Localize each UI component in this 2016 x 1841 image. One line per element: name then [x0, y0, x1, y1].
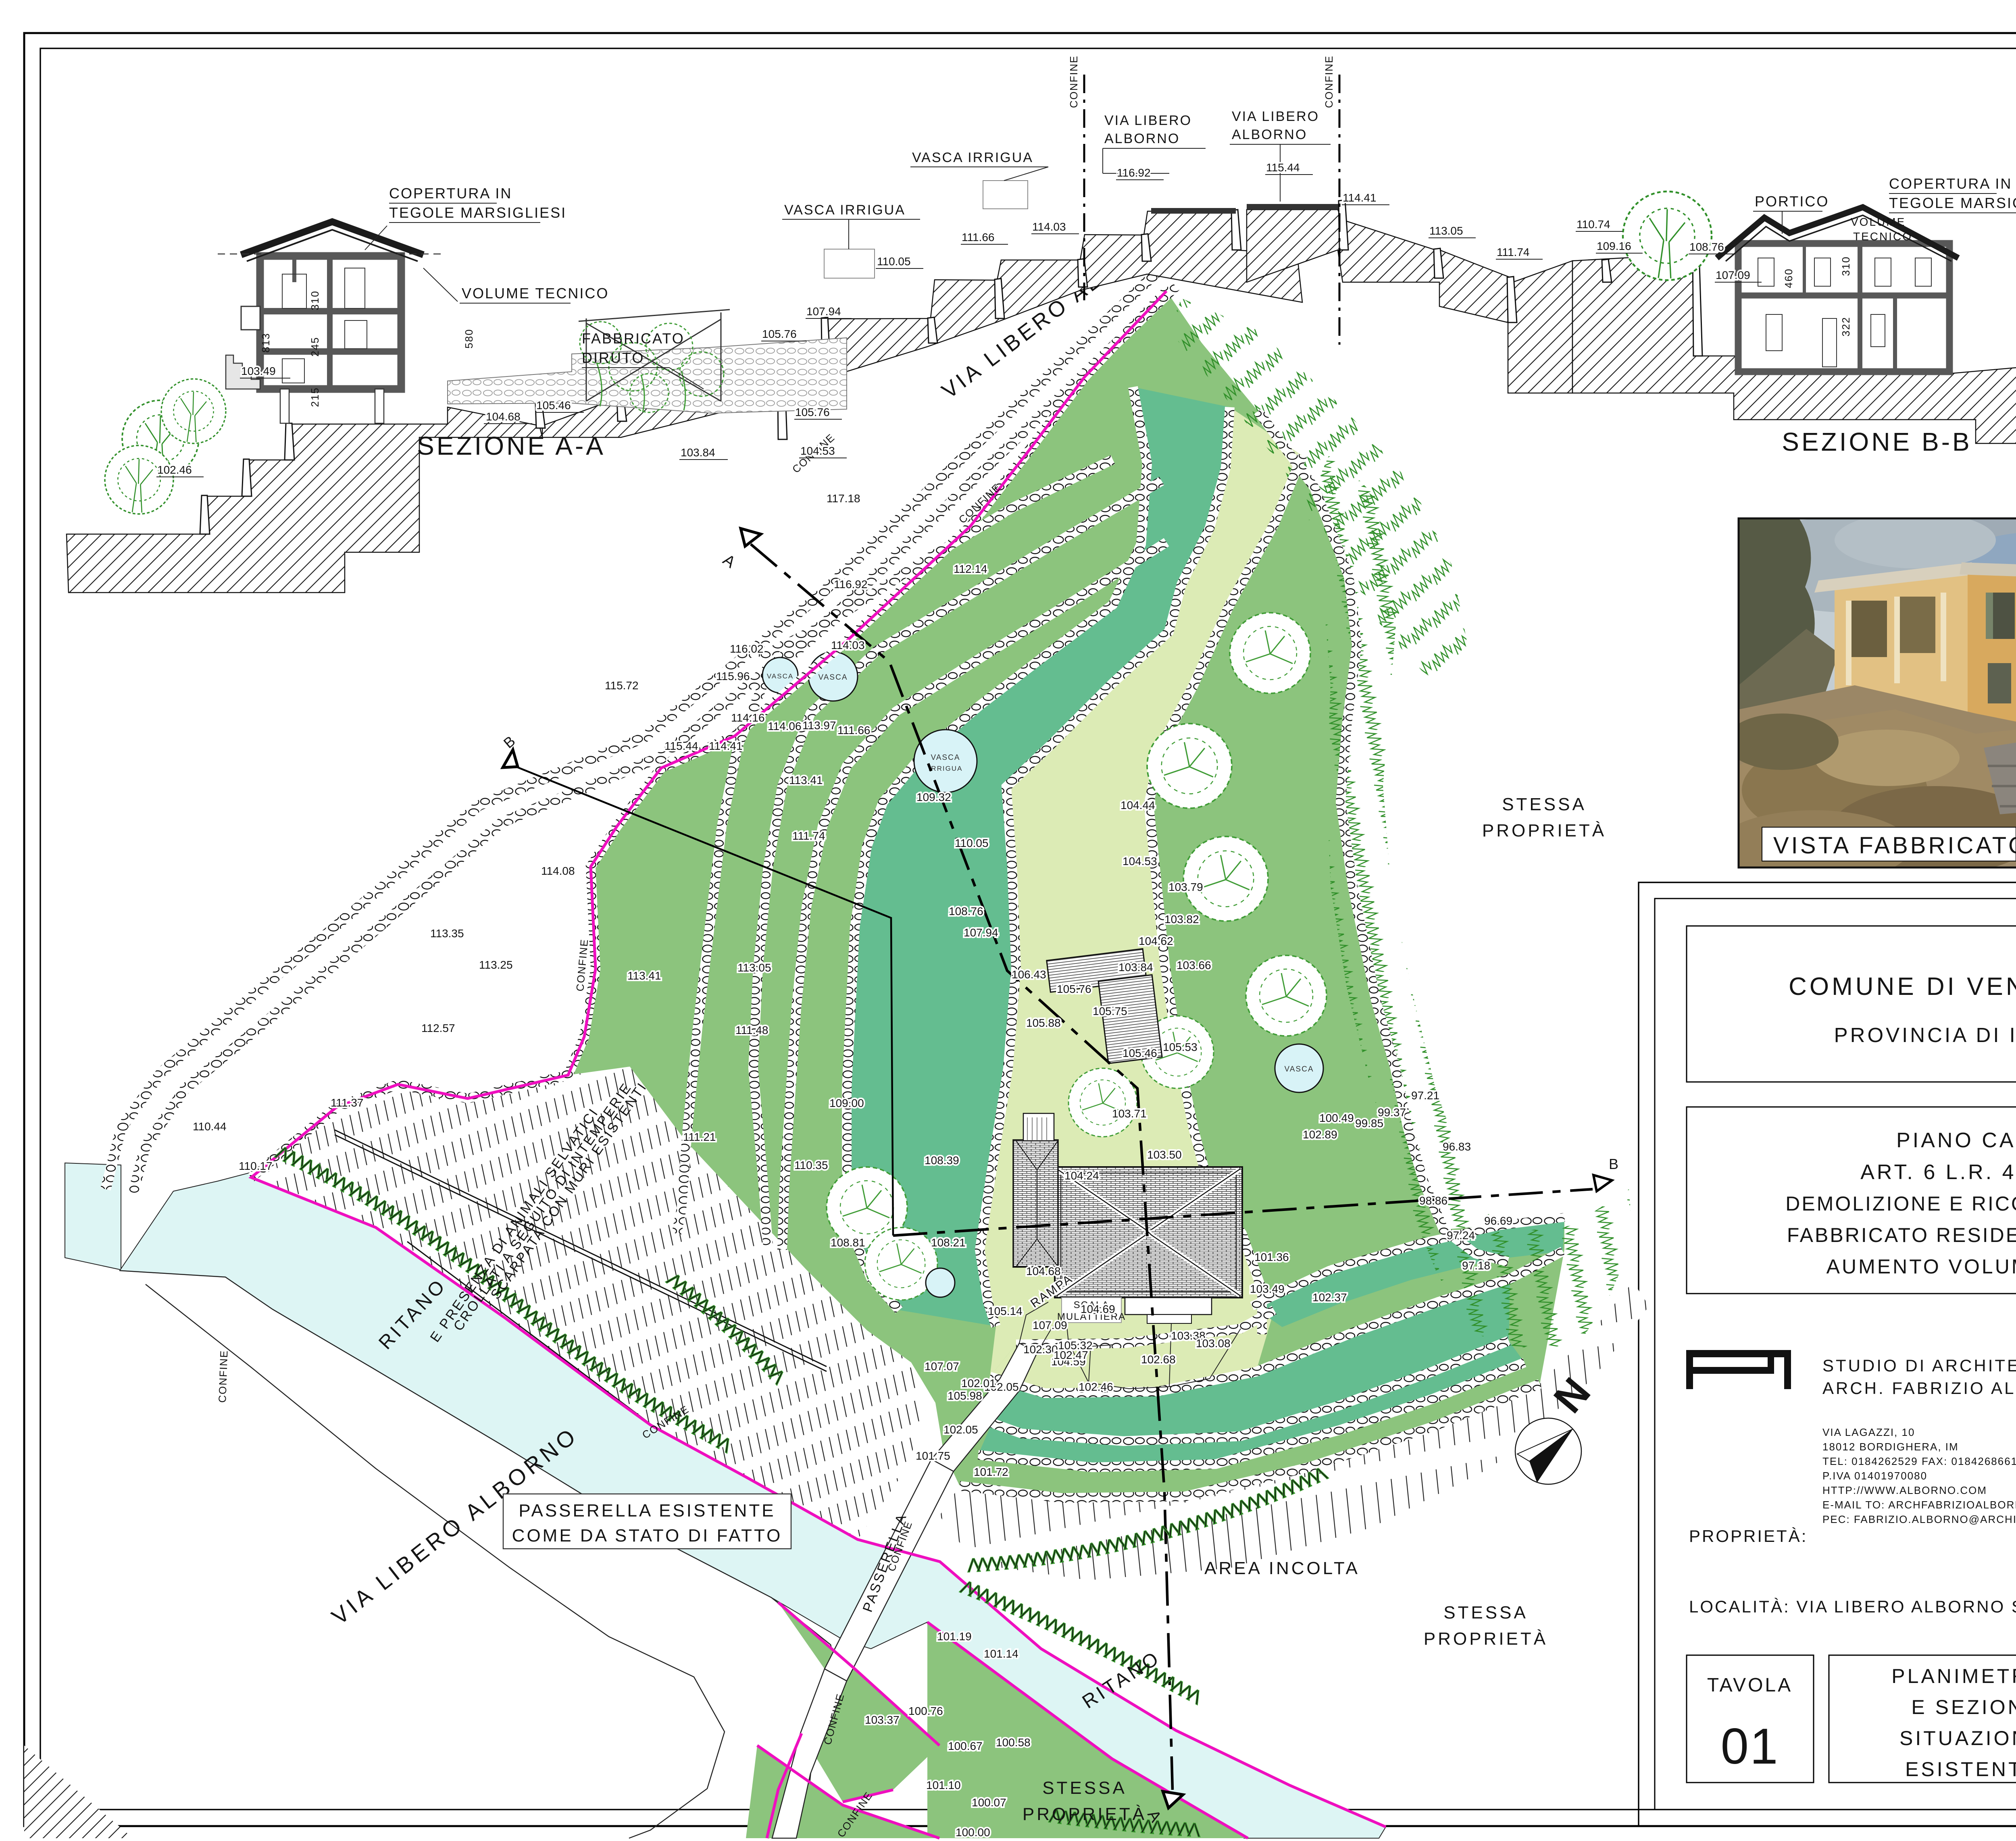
svg-text:102.05: 102.05 [943, 1423, 978, 1436]
svg-text:VOLUME: VOLUME [1851, 216, 1906, 228]
svg-text:COPERTURA IN: COPERTURA IN [389, 185, 512, 202]
svg-text:TECNICO: TECNICO [1853, 230, 1912, 243]
svg-text:114.41: 114.41 [709, 740, 743, 752]
svg-text:109.32: 109.32 [916, 791, 951, 803]
svg-text:CONFINE: CONFINE [1068, 55, 1080, 108]
svg-text:VASCA IRRIGUA: VASCA IRRIGUA [784, 202, 906, 218]
svg-text:SEZIONE A-A: SEZIONE A-A [417, 431, 606, 460]
svg-text:104.69: 104.69 [1081, 1303, 1115, 1315]
svg-text:100.58: 100.58 [996, 1736, 1031, 1749]
svg-text:PROPRIETÀ:: PROPRIETÀ: [1689, 1527, 1808, 1546]
svg-text:460: 460 [1783, 268, 1795, 288]
svg-text:114.16: 114.16 [731, 711, 765, 724]
svg-text:ALBORNO: ALBORNO [1104, 131, 1180, 146]
svg-text:103.82: 103.82 [1164, 913, 1199, 926]
svg-text:103.79: 103.79 [1168, 881, 1203, 893]
svg-text:115.96: 115.96 [716, 670, 750, 682]
svg-text:97.24: 97.24 [1447, 1229, 1475, 1242]
svg-text:115.72: 115.72 [605, 679, 639, 692]
svg-text:COMUNE DI VENTIMIGLIA: COMUNE DI VENTIMIGLIA [1789, 973, 2016, 1001]
svg-text:COME DA STATO DI FATTO: COME DA STATO DI FATTO [512, 1526, 783, 1546]
svg-text:STESSA: STESSA [1042, 1778, 1127, 1798]
svg-text:VASCA: VASCA [818, 673, 848, 682]
svg-text:115.44: 115.44 [1266, 161, 1300, 174]
svg-text:PROPRIETÀ: PROPRIETÀ [1023, 1804, 1147, 1824]
svg-text:310: 310 [309, 290, 321, 310]
svg-text:108.81: 108.81 [831, 1236, 865, 1249]
svg-text:VISTA FABBRICATO: VISTA FABBRICATO [1773, 832, 2016, 859]
svg-text:101.19: 101.19 [937, 1630, 972, 1643]
svg-text:PROPRIETÀ: PROPRIETÀ [1424, 1629, 1548, 1649]
svg-text:PEC: FABRIZIO.ALBORNO@ARCHIWOR: PEC: FABRIZIO.ALBORNO@ARCHIWORLDPEC.IT [1822, 1513, 2016, 1525]
svg-text:VIA LIBERO: VIA LIBERO [1232, 109, 1319, 124]
svg-text:104.68: 104.68 [1026, 1265, 1061, 1277]
svg-text:108.21: 108.21 [931, 1236, 966, 1249]
svg-text:111.66: 111.66 [837, 724, 870, 736]
svg-text:104.68: 104.68 [486, 410, 521, 423]
svg-text:113.05: 113.05 [1429, 225, 1463, 237]
svg-text:102.30: 102.30 [1023, 1343, 1058, 1356]
svg-text:114.08: 114.08 [541, 865, 575, 877]
svg-text:105.53: 105.53 [1163, 1041, 1198, 1053]
svg-text:107.07: 107.07 [925, 1360, 959, 1373]
svg-text:113.97: 113.97 [802, 719, 836, 732]
svg-text:114.41: 114.41 [1343, 191, 1377, 204]
svg-text:E-MAIL TO: ARCHFABRIZIOALBORNO: E-MAIL TO: ARCHFABRIZIOALBORNO@GMAIL.COM [1822, 1499, 2016, 1511]
svg-text:105.88: 105.88 [1026, 1017, 1061, 1029]
svg-text:ESISTENTE: ESISTENTE [1905, 1758, 2016, 1781]
svg-text:116.02: 116.02 [730, 643, 764, 655]
svg-text:102.89: 102.89 [1303, 1128, 1337, 1141]
svg-text:101.72: 101.72 [974, 1466, 1008, 1478]
svg-text:813: 813 [260, 333, 272, 352]
svg-text:107.09: 107.09 [1033, 1319, 1067, 1331]
svg-text:102.46: 102.46 [157, 464, 192, 476]
svg-text:104.62: 104.62 [1139, 935, 1173, 947]
svg-text:96.69: 96.69 [1484, 1215, 1512, 1227]
svg-text:109.16: 109.16 [1597, 240, 1631, 252]
svg-text:104.24: 104.24 [1064, 1169, 1099, 1182]
svg-text:VASCA: VASCA [1284, 1065, 1314, 1073]
svg-text:105.98: 105.98 [948, 1390, 982, 1402]
svg-text:111.48: 111.48 [735, 1024, 768, 1036]
svg-text:104.44: 104.44 [1120, 799, 1155, 811]
svg-text:322: 322 [1840, 316, 1852, 336]
svg-text:108.76: 108.76 [1689, 241, 1724, 253]
svg-text:102.37: 102.37 [1312, 1291, 1347, 1304]
svg-text:215: 215 [309, 387, 321, 407]
svg-text:TEGOLE MARSIGLIESI: TEGOLE MARSIGLIESI [1889, 195, 2016, 211]
svg-text:114.03: 114.03 [1032, 221, 1066, 233]
svg-text:110.35: 110.35 [794, 1159, 828, 1171]
svg-text:111.74: 111.74 [792, 830, 825, 842]
svg-text:111.74: 111.74 [1497, 246, 1529, 258]
svg-text:105.46: 105.46 [536, 399, 571, 412]
svg-text:580: 580 [463, 329, 475, 348]
svg-text:116.92: 116.92 [834, 578, 868, 591]
svg-text:110.74: 110.74 [1577, 218, 1610, 231]
svg-text:AUMENTO VOLUMETRICO: AUMENTO VOLUMETRICO [1826, 1255, 2016, 1278]
svg-text:106.43: 106.43 [1012, 968, 1046, 981]
svg-text:B: B [1609, 1156, 1620, 1172]
svg-text:104.53: 104.53 [1123, 855, 1157, 867]
svg-text:103.49: 103.49 [241, 365, 276, 377]
svg-text:VASCA IRRIGUA: VASCA IRRIGUA [912, 150, 1033, 165]
svg-text:DIRUTO: DIRUTO [582, 349, 644, 366]
svg-text:112.14: 112.14 [954, 563, 987, 575]
svg-text:113.25: 113.25 [479, 959, 513, 971]
svg-text:ARCH. FABRIZIO ALBORNO: ARCH. FABRIZIO ALBORNO [1822, 1379, 2016, 1398]
svg-text:99.37: 99.37 [1378, 1106, 1406, 1119]
svg-text:98.86: 98.86 [1419, 1194, 1447, 1207]
svg-text:102.47: 102.47 [1054, 1349, 1088, 1361]
svg-text:103.08: 103.08 [1196, 1337, 1231, 1350]
svg-text:100.49: 100.49 [1319, 1112, 1354, 1124]
svg-text:SEZIONE B-B: SEZIONE B-B [1782, 427, 1972, 456]
svg-text:VASCA: VASCA [931, 753, 960, 762]
svg-text:FABBRICATO RESIDENZIALE CON: FABBRICATO RESIDENZIALE CON [1787, 1224, 2016, 1246]
svg-text:100.07: 100.07 [972, 1796, 1006, 1809]
svg-text:101.14: 101.14 [984, 1648, 1018, 1660]
svg-text:101.10: 101.10 [926, 1779, 961, 1791]
svg-text:105.76: 105.76 [1057, 983, 1091, 995]
svg-text:VIA LAGAZZI, 10: VIA LAGAZZI, 10 [1822, 1426, 1915, 1438]
svg-text:215: 215 [2014, 349, 2016, 368]
svg-text:111.37: 111.37 [331, 1096, 363, 1109]
svg-text:97.21: 97.21 [1411, 1089, 1439, 1102]
svg-text:DEMOLIZIONE E RICOSTRUZIONE: DEMOLIZIONE E RICOSTRUZIONE [1785, 1192, 2016, 1215]
svg-text:108.39: 108.39 [925, 1154, 959, 1167]
svg-text:107.94: 107.94 [964, 926, 998, 939]
svg-text:113.35: 113.35 [430, 927, 464, 940]
svg-text:LOCALITÀ: VIA LIBERO ALBORNO S: LOCALITÀ: VIA LIBERO ALBORNO SNC [1689, 1597, 2016, 1616]
svg-text:PROPRIETÀ: PROPRIETÀ [1482, 821, 1606, 840]
svg-text:105.14: 105.14 [988, 1305, 1023, 1317]
svg-text:PORTICO: PORTICO [1755, 193, 1829, 210]
svg-text:110.44: 110.44 [193, 1120, 227, 1133]
svg-text:COPERTURA IN: COPERTURA IN [1889, 175, 2012, 192]
svg-text:245: 245 [2014, 308, 2016, 328]
svg-text:111.66: 111.66 [962, 231, 994, 243]
svg-text:TEL: 0184262529 FAX: 018426866: TEL: 0184262529 FAX: 0184268661 [1822, 1455, 2016, 1467]
svg-text:STESSA: STESSA [1502, 795, 1587, 814]
svg-text:E SEZIONI: E SEZIONI [1911, 1696, 2016, 1718]
svg-text:101.75: 101.75 [916, 1450, 950, 1462]
svg-text:97.18: 97.18 [1462, 1259, 1490, 1272]
svg-text:VOLUME TECNICO: VOLUME TECNICO [462, 285, 609, 302]
svg-text:103.71: 103.71 [1112, 1107, 1147, 1120]
svg-text:CONFINE: CONFINE [216, 1350, 230, 1403]
svg-text:102.46: 102.46 [1079, 1381, 1113, 1393]
svg-text:102.01: 102.01 [961, 1377, 996, 1390]
svg-text:105.76: 105.76 [795, 406, 830, 418]
svg-text:ART. 6 L.R. 49/09: ART. 6 L.R. 49/09 [1860, 1161, 2016, 1184]
svg-text:113.05: 113.05 [737, 961, 771, 974]
svg-text:110.05: 110.05 [955, 837, 989, 849]
svg-text:110.17: 110.17 [239, 1160, 273, 1172]
svg-text:115.44: 115.44 [664, 740, 698, 752]
svg-text:100.76: 100.76 [908, 1705, 943, 1717]
svg-text:99.85: 99.85 [1355, 1117, 1383, 1130]
svg-text:113.41: 113.41 [627, 969, 661, 982]
svg-text:111.21: 111.21 [683, 1131, 716, 1143]
svg-text:107.94: 107.94 [806, 305, 841, 318]
svg-text:P.IVA 01401970080: P.IVA 01401970080 [1822, 1470, 1927, 1482]
svg-text:103.66: 103.66 [1177, 959, 1211, 971]
svg-text:245: 245 [309, 337, 321, 356]
svg-text:103.37: 103.37 [865, 1714, 900, 1726]
svg-text:AREA INCOLTA: AREA INCOLTA [1204, 1558, 1360, 1578]
svg-text:01: 01 [1720, 1718, 1779, 1774]
svg-text:PLANIMETRIA: PLANIMETRIA [1891, 1665, 2016, 1687]
svg-text:101.36: 101.36 [1254, 1251, 1289, 1263]
svg-text:103.50: 103.50 [1147, 1148, 1182, 1161]
svg-text:310: 310 [1840, 256, 1852, 276]
svg-text:110.05: 110.05 [877, 255, 911, 268]
svg-text:TAVOLA: TAVOLA [1707, 1675, 1793, 1696]
svg-text:100.67: 100.67 [948, 1740, 983, 1752]
svg-text:VASCA: VASCA [767, 672, 793, 680]
svg-text:STUDIO DI ARCHITETTURA: STUDIO DI ARCHITETTURA [1822, 1356, 2016, 1375]
svg-text:104.53: 104.53 [800, 445, 835, 457]
svg-text:102.68: 102.68 [1141, 1353, 1176, 1366]
svg-text:VIA LIBERO: VIA LIBERO [1104, 113, 1192, 128]
svg-text:IRRIGUA: IRRIGUA [929, 765, 963, 772]
svg-text:PIANO CASA: PIANO CASA [1896, 1129, 2016, 1152]
svg-text:100.00: 100.00 [956, 1826, 990, 1839]
svg-text:ALBORNO: ALBORNO [1232, 127, 1307, 142]
svg-text:105.76: 105.76 [762, 328, 797, 340]
svg-text:103.84: 103.84 [681, 446, 715, 459]
svg-text:112.57: 112.57 [421, 1022, 455, 1034]
svg-text:103.84: 103.84 [1118, 961, 1153, 974]
svg-text:109.00: 109.00 [829, 1097, 864, 1109]
svg-text:114.03: 114.03 [831, 639, 865, 651]
svg-text:PASSERELLA ESISTENTE: PASSERELLA ESISTENTE [519, 1501, 775, 1521]
svg-text:114.06: 114.06 [768, 720, 802, 732]
svg-text:SITUAZIONE: SITUAZIONE [1899, 1727, 2016, 1749]
svg-text:108.76: 108.76 [949, 905, 983, 917]
svg-text:CONFINE: CONFINE [1323, 55, 1335, 108]
svg-text:113.41: 113.41 [789, 774, 823, 786]
svg-text:105.75: 105.75 [1093, 1005, 1127, 1017]
svg-text:105.46: 105.46 [1123, 1047, 1157, 1059]
svg-text:116.92: 116.92 [1117, 166, 1151, 179]
svg-text:96.83: 96.83 [1443, 1140, 1471, 1153]
svg-text:TEGOLE MARSIGLIESI: TEGOLE MARSIGLIESI [389, 204, 566, 221]
svg-text:HTTP://WWW.ALBORNO.COM: HTTP://WWW.ALBORNO.COM [1822, 1484, 1987, 1496]
svg-text:18012 BORDIGHERA, IM: 18012 BORDIGHERA, IM [1822, 1441, 1959, 1453]
svg-text:FABBRICATO: FABBRICATO [582, 330, 685, 347]
svg-text:PROVINCIA DI IMPERIA: PROVINCIA DI IMPERIA [1834, 1023, 2016, 1046]
svg-text:STESSA: STESSA [1443, 1603, 1528, 1623]
svg-text:107.09: 107.09 [1716, 269, 1750, 281]
svg-text:103.49: 103.49 [1250, 1283, 1285, 1295]
svg-text:117.18: 117.18 [827, 492, 860, 505]
